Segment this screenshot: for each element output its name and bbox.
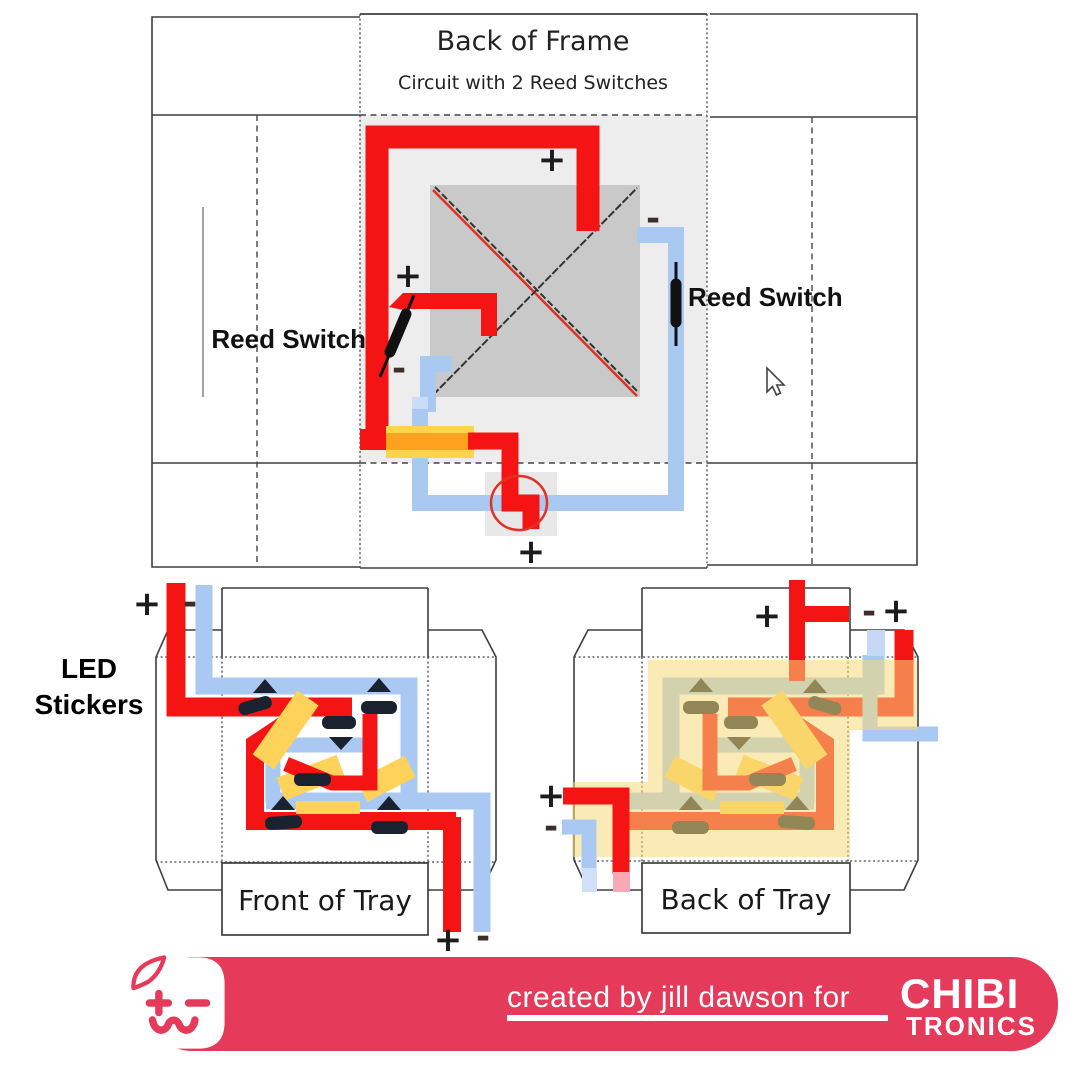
- polarity-minus-front-top: -: [183, 586, 197, 620]
- credit-text: created by jill dawson for: [507, 981, 850, 1015]
- polarity-plus-frame-left: +: [394, 259, 423, 293]
- polarity-plus-front-top: +: [133, 587, 162, 621]
- polarity-minus-frame-left: -: [392, 352, 406, 386]
- chibitronics-logo-icon: [126, 950, 232, 1056]
- back-tray-label: Back of Tray: [642, 883, 850, 916]
- front-tray-label: Front of Tray: [222, 884, 428, 917]
- polarity-minus-front-bottom: -: [476, 920, 490, 954]
- polarity-minus-back-right: -: [862, 595, 876, 629]
- led-stickers-line1: LED: [0, 651, 178, 687]
- frame-title: Back of Frame: [363, 26, 703, 57]
- polarity-plus-back-top: +: [753, 599, 782, 633]
- cursor-icon: [767, 368, 784, 395]
- reed-switch-label-left: Reed Switch: [150, 324, 366, 355]
- polarity-plus-frame-bottom: +: [517, 535, 546, 569]
- reed-switch-label-right: Reed Switch: [688, 282, 908, 313]
- polarity-minus-back-left: -: [544, 810, 558, 844]
- polarity-plus-front-bottom: +: [434, 923, 463, 957]
- brand-tronics: TRONICS: [906, 1011, 1037, 1042]
- credit-underline: [507, 1015, 888, 1021]
- frame-subtitle: Circuit with 2 Reed Switches: [363, 72, 703, 94]
- led-stickers-label: LED Stickers: [0, 651, 178, 724]
- polarity-plus-back-right: +: [882, 594, 911, 628]
- polarity-minus-frame-right: -: [646, 202, 660, 236]
- polarity-plus-frame-top: +: [538, 143, 567, 177]
- page: Back of Frame Circuit with 2 Reed Switch…: [0, 0, 1080, 1080]
- led-stickers-line2: Stickers: [0, 687, 178, 723]
